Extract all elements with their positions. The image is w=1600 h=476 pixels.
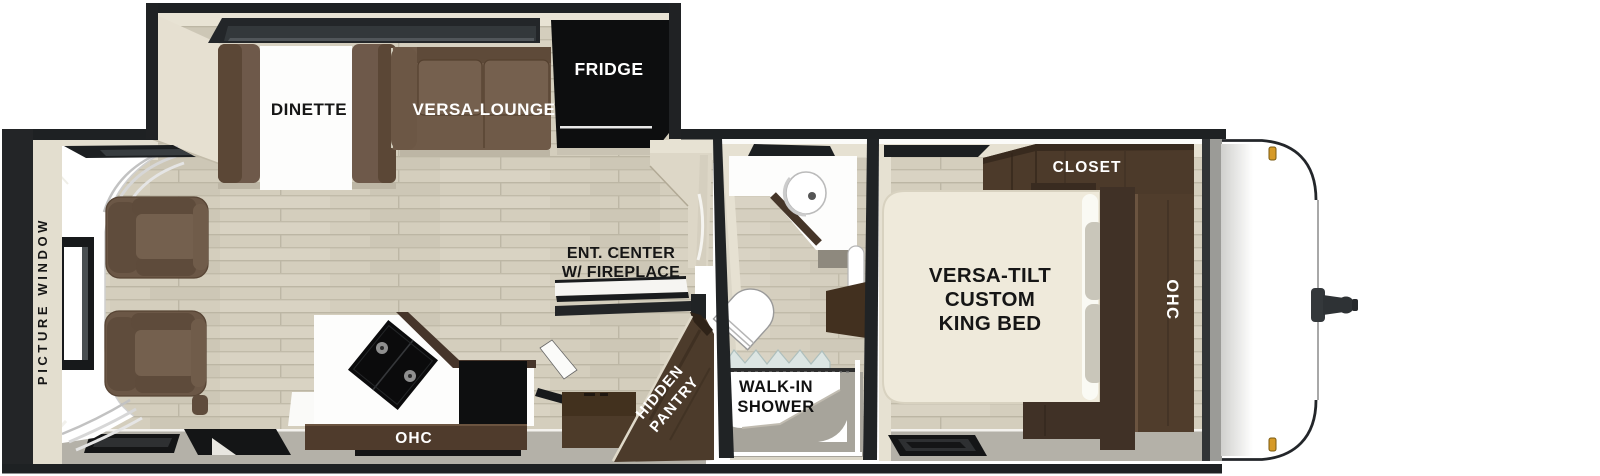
svg-text:OHC: OHC: [395, 430, 432, 447]
svg-text:ENT. CENTER: ENT. CENTER: [567, 245, 675, 262]
svg-text:VERSA-LOUNGE: VERSA-LOUNGE: [413, 100, 556, 119]
svg-text:FRIDGE: FRIDGE: [574, 59, 643, 79]
svg-text:PICTURE WINDOW: PICTURE WINDOW: [35, 217, 50, 385]
svg-text:KING BED: KING BED: [939, 312, 1042, 335]
svg-text:DINETTE: DINETTE: [271, 100, 347, 119]
svg-text:SHOWER: SHOWER: [737, 398, 814, 416]
svg-text:VERSA-TILT: VERSA-TILT: [929, 264, 1051, 287]
svg-text:CUSTOM: CUSTOM: [945, 288, 1035, 311]
svg-text:OHC: OHC: [1163, 279, 1181, 320]
svg-text:CLOSET: CLOSET: [1053, 159, 1122, 176]
svg-text:WALK-IN: WALK-IN: [739, 378, 813, 396]
